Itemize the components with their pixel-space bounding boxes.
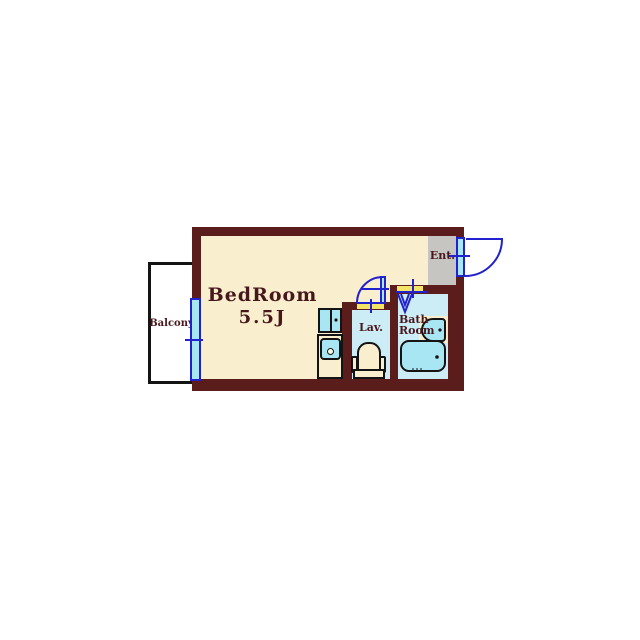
lavatory-door-panel <box>380 276 386 304</box>
entrance-label: Ent. <box>429 249 456 262</box>
balcony-label: Balcony <box>149 318 194 329</box>
lavatory-label: Lav. <box>352 321 390 334</box>
bathroom-label: Bath Room <box>399 314 447 336</box>
wall-bathroom-right <box>448 294 456 379</box>
entrance-door-swing-arc <box>465 239 502 276</box>
balcony-room: Balcony <box>148 262 192 384</box>
bedroom-label: BedRoom <box>200 284 325 306</box>
kitchen-cabinet-divider <box>330 310 332 331</box>
entrance-door-panel <box>456 237 465 277</box>
wall-lavatory-bathroom <box>390 286 398 379</box>
floor-plan-canvas: Balcony <box>0 0 640 640</box>
bathtub <box>400 340 446 372</box>
wall-entrance-bottom <box>428 285 456 294</box>
toilet-bowl <box>357 342 381 372</box>
bedroom-size-label: 5.5J <box>200 307 325 328</box>
bathroom-door-threshold <box>397 286 423 293</box>
bathroom-label-line2: Room <box>399 325 447 336</box>
kitchen-sink-drain <box>327 348 334 355</box>
toilet-tank <box>353 369 385 379</box>
